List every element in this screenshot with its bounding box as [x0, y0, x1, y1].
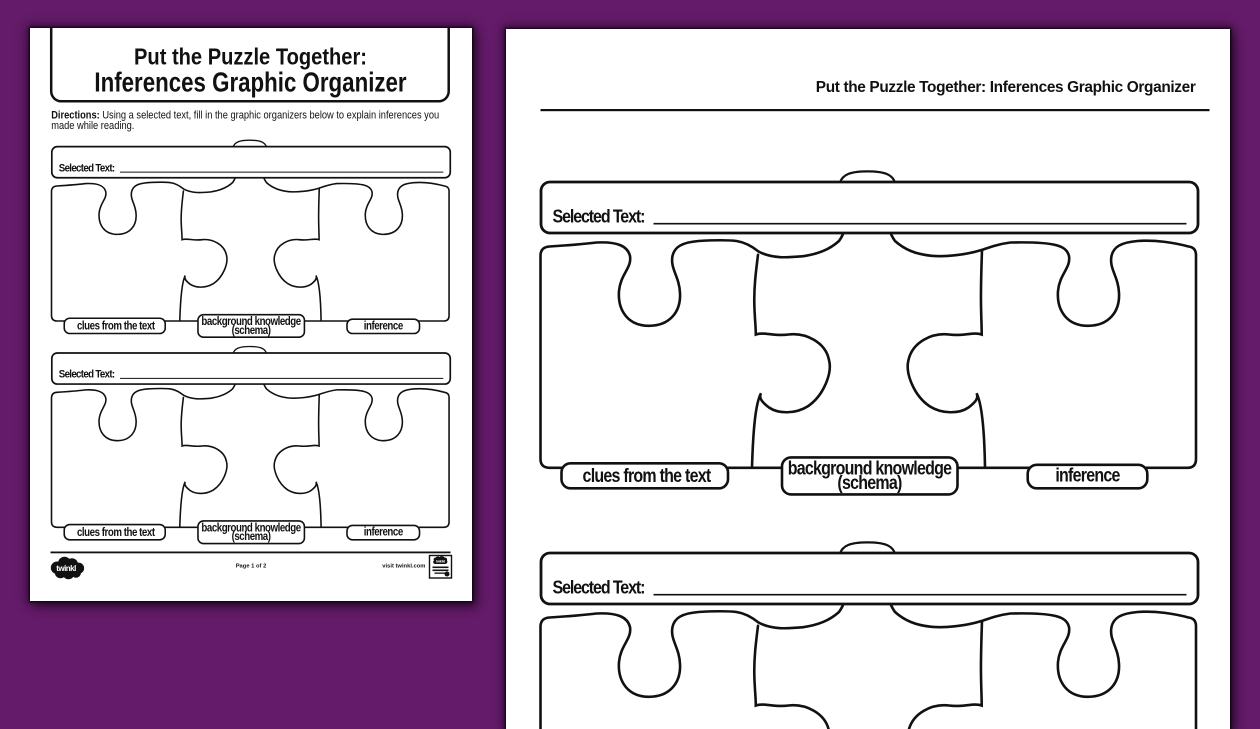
svg-text:twinkl: twinkl [436, 560, 445, 564]
svg-text:Inferences Graphic Organizer: Inferences Graphic Organizer [94, 67, 406, 98]
svg-text:made while reading.: made while reading. [51, 120, 134, 132]
svg-text:Put the Puzzle Together: Infer: Put the Puzzle Together: Inferences Grap… [815, 78, 1195, 95]
svg-text:twinkl: twinkl [56, 564, 76, 573]
svg-text:Put the Puzzle Together:: Put the Puzzle Together: [134, 43, 367, 70]
svg-text:Page 1 of 2: Page 1 of 2 [235, 564, 266, 570]
svg-text:visit twinkl.com: visit twinkl.com [382, 564, 425, 570]
